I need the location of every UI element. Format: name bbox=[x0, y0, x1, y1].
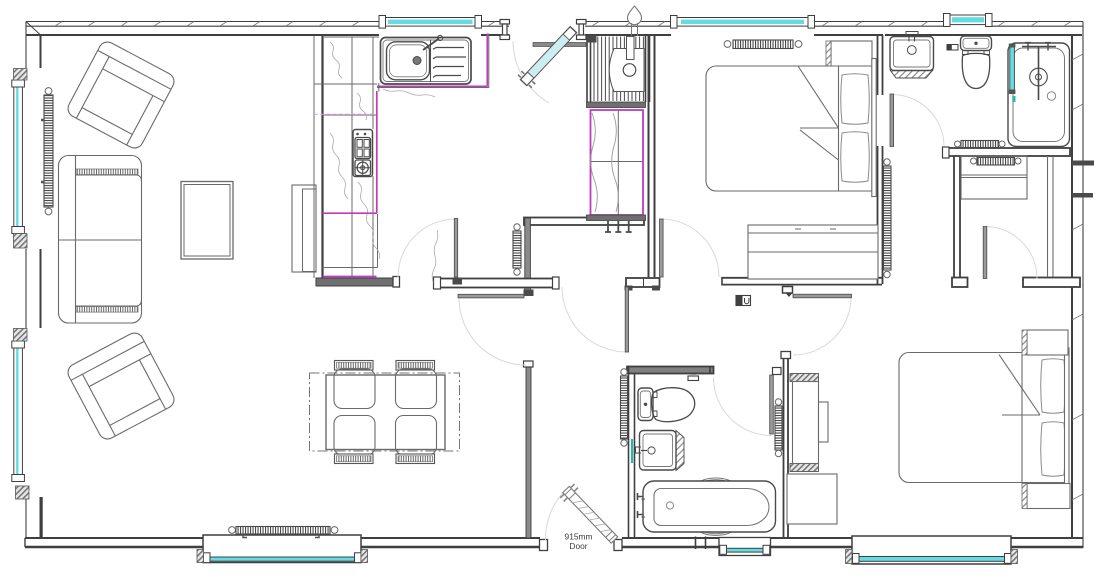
svg-text:Door: Door bbox=[569, 541, 587, 551]
svg-text:915mm: 915mm bbox=[565, 532, 593, 542]
